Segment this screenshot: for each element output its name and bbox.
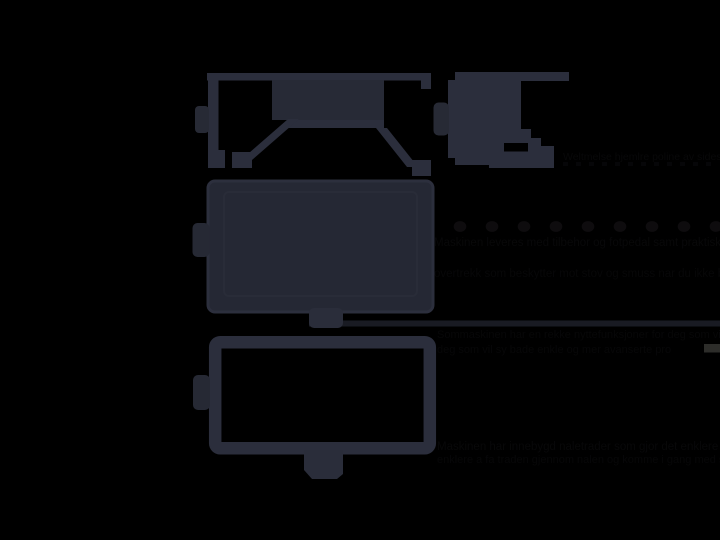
svg-text:enklere a fa traden gjennom na: enklere a fa traden gjennom nalen og kom… bbox=[437, 454, 720, 466]
svg-text:Maskinen leveres med tilbehor: Maskinen leveres med tilbehor og fotpeda… bbox=[434, 237, 720, 249]
svg-text:Maskinen har innebygd naletrad: Maskinen har innebygd naletrader som gjo… bbox=[437, 441, 720, 453]
svg-text:Sommaskinen har en rekke nytte: Sommaskinen har en rekke nyttefunksjoner… bbox=[437, 329, 720, 341]
svg-text:overtrekk som beskytter mot st: overtrekk som beskytter mot stov og smus… bbox=[434, 268, 720, 280]
svg-text:deg som vil sy bade enkle og m: deg som vil sy bade enkle og mer avanser… bbox=[437, 344, 671, 356]
svg-text:Weltmelse hjemlre poline av si: Weltmelse hjemlre poline av sidestr bbox=[563, 151, 720, 163]
